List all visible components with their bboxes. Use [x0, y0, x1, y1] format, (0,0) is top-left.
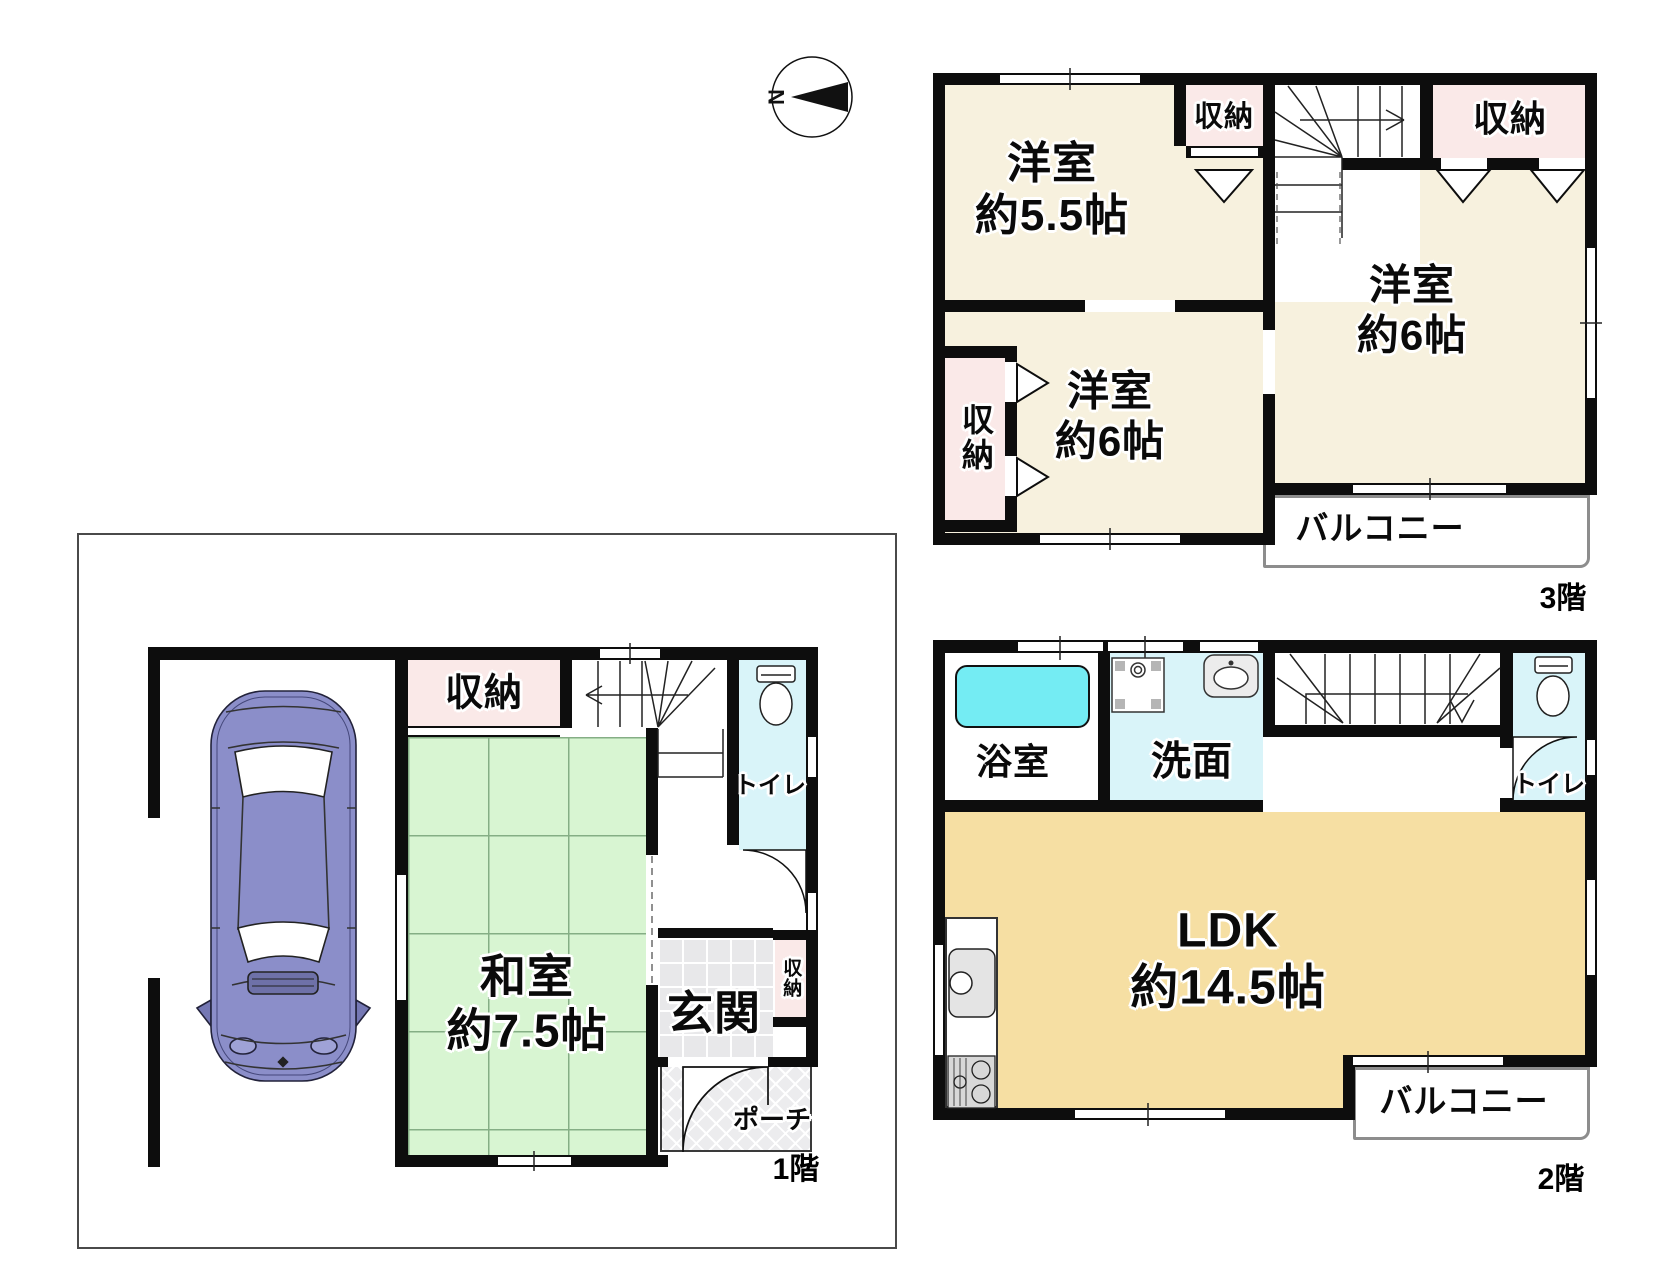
- closet-sliding-door: [408, 726, 560, 737]
- wall: [1506, 483, 1597, 495]
- window: [1585, 880, 1597, 975]
- wall: [560, 660, 572, 728]
- window: [1585, 248, 1597, 398]
- wall: [1420, 73, 1433, 170]
- floor-label-3f: 3階: [1540, 573, 1587, 617]
- window: [1585, 740, 1597, 775]
- room-label-bathroom-2f: 浴室: [976, 741, 1050, 783]
- wall: [727, 660, 739, 845]
- sliding-door-opening: [646, 855, 658, 985]
- wall: [773, 1017, 818, 1027]
- room-label-storage-b-3f: 収納: [1473, 98, 1547, 140]
- window: [498, 1155, 571, 1167]
- wall: [148, 647, 818, 660]
- closet-door: [1191, 146, 1258, 158]
- door-opening: [1085, 300, 1175, 312]
- wall: [1263, 85, 1275, 545]
- floor-label-2f: 2階: [1538, 1154, 1585, 1198]
- floor-plan-canvas: N: [0, 0, 1676, 1285]
- wall: [1500, 800, 1597, 812]
- room-ldk-2f-kitchen-bay: [945, 1055, 1343, 1108]
- room-label-toilet-2f: トイレ: [1513, 771, 1585, 799]
- room-label-toilet-1f: トイレ: [734, 772, 806, 800]
- room-label-storage-a-3f: 収納: [1194, 100, 1254, 134]
- wall: [1263, 725, 1513, 737]
- wall: [1098, 653, 1110, 800]
- window: [806, 737, 818, 777]
- wall: [1585, 653, 1597, 1067]
- window: [1353, 483, 1506, 495]
- door-opening: [1500, 748, 1513, 798]
- bathtub: [955, 665, 1090, 728]
- room-label-balcony-3f: バルコニー: [1295, 510, 1464, 549]
- wall: [773, 930, 818, 940]
- wall: [806, 647, 818, 1067]
- wall: [1342, 158, 1420, 170]
- window: [600, 647, 660, 660]
- room-label-ldk-2f: LDK 約14.5帖: [1130, 903, 1325, 1016]
- svg-text:N: N: [764, 89, 789, 105]
- closet-door: [1005, 456, 1017, 496]
- entrance-door-opening: [668, 1057, 768, 1067]
- closet-door: [1539, 158, 1585, 170]
- wall: [658, 928, 773, 938]
- room-washitsu-1f: [408, 737, 646, 1155]
- room-label-bedroom-a-3f: 洋室 約5.5帖: [975, 138, 1129, 242]
- window: [395, 875, 408, 1000]
- window: [1353, 1055, 1503, 1067]
- window: [1075, 1108, 1225, 1120]
- room-label-entrance-1f: 玄関: [667, 986, 761, 1040]
- kitchen-counter: [945, 917, 998, 1108]
- wall: [148, 978, 160, 1167]
- wall: [933, 85, 945, 545]
- closet-door: [1441, 158, 1487, 170]
- room-label-bedroom-b-3f: 洋室 約6帖: [1357, 260, 1467, 359]
- window: [1000, 73, 1140, 85]
- wall: [1275, 483, 1353, 495]
- window: [1040, 533, 1180, 545]
- wall: [148, 647, 160, 818]
- floor-label-1f: 1階: [773, 1144, 820, 1188]
- room-label-balcony-2f: バルコニー: [1379, 1083, 1548, 1122]
- door-opening: [1263, 330, 1275, 394]
- stairs-2f: [1277, 654, 1500, 724]
- wall: [1174, 85, 1186, 146]
- window: [1018, 640, 1103, 653]
- window: [933, 945, 945, 1055]
- window: [1108, 640, 1183, 653]
- room-toilet-1f: [739, 660, 806, 850]
- room-label-storage-c-3f: 収納: [956, 403, 994, 473]
- room-label-washitsu-1f: 和室 約7.5帖: [447, 950, 608, 1059]
- closet-door: [1005, 362, 1017, 402]
- compass-icon: N: [764, 57, 852, 137]
- room-label-washroom-2f: 洗面: [1151, 738, 1233, 785]
- room-label-porch-1f: ポーチ: [733, 1105, 811, 1136]
- room-label-entrance-storage-1f: 収納: [779, 958, 801, 998]
- room-label-storage-1f: 収納: [445, 672, 523, 717]
- wall: [933, 800, 1263, 812]
- window: [1200, 640, 1258, 653]
- room-label-bedroom-c-3f: 洋室 約6帖: [1055, 366, 1165, 465]
